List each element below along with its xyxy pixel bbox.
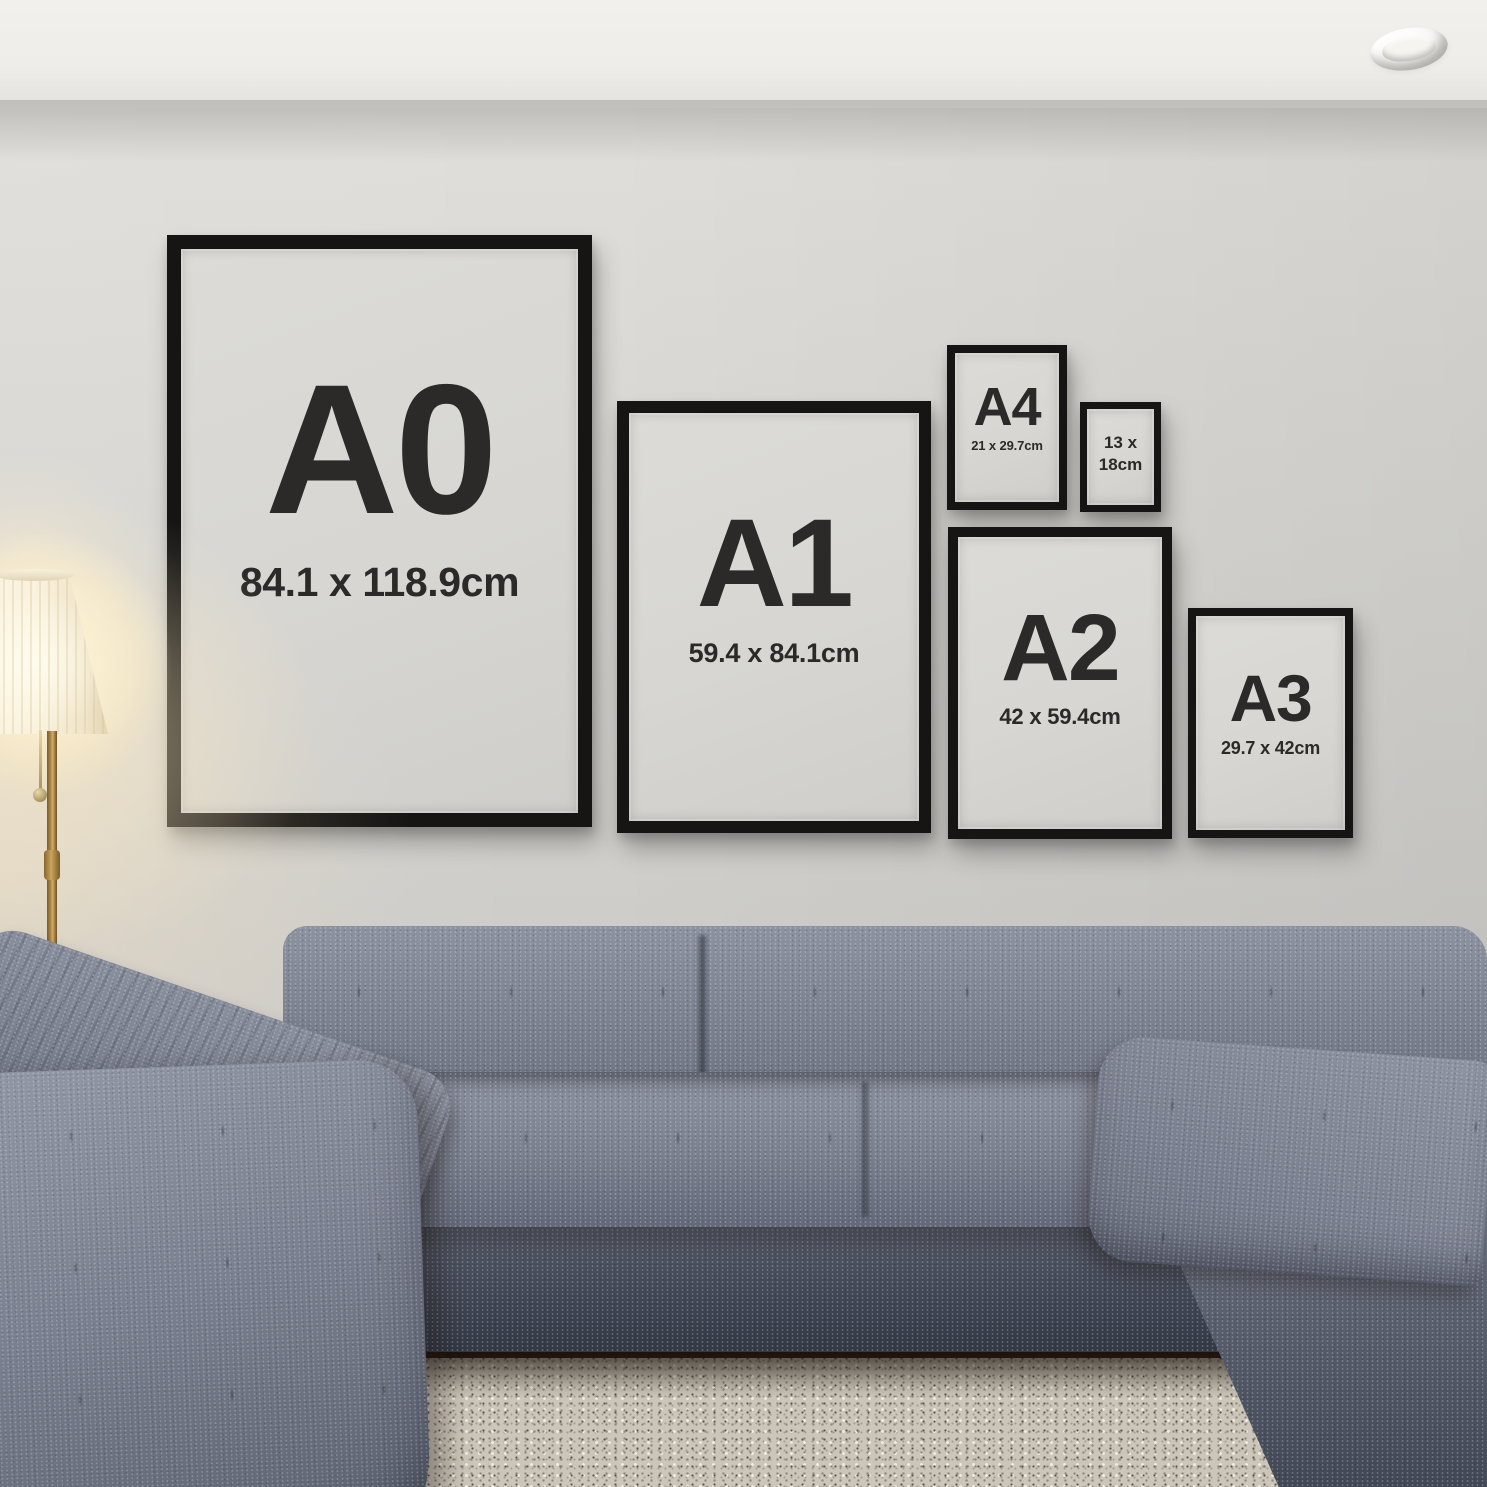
frame-13x18: 13 x 18cm bbox=[1080, 402, 1161, 512]
frame-a4-size: 21 x 29.7cm bbox=[971, 438, 1043, 453]
frame-a0-content: A0 84.1 x 118.9cm bbox=[181, 203, 578, 767]
frame-13x18-size-line2: 18cm bbox=[1099, 454, 1142, 476]
frame-a3-size: 29.7 x 42cm bbox=[1221, 738, 1320, 759]
frame-a4: A4 21 x 29.7cm bbox=[947, 345, 1067, 510]
frame-13x18-size-line1: 13 x bbox=[1104, 432, 1137, 454]
frame-a3-content: A3 29.7 x 42cm bbox=[1196, 606, 1345, 820]
frame-a0: A0 84.1 x 118.9cm bbox=[167, 235, 592, 827]
frame-a0-size: 84.1 x 118.9cm bbox=[240, 559, 519, 606]
frame-a1-size: 59.4 x 84.1cm bbox=[689, 638, 860, 669]
sofa-seat-seam bbox=[862, 1082, 868, 1217]
lamp-pole-joint bbox=[44, 850, 60, 880]
frame-a2-content: A2 42 x 59.4cm bbox=[958, 521, 1162, 813]
frame-a1: A1 59.4 x 84.1cm bbox=[617, 401, 931, 833]
frame-a2-size: 42 x 59.4cm bbox=[999, 704, 1120, 730]
frame-a1-label: A1 bbox=[697, 505, 852, 623]
frame-a3-label: A3 bbox=[1230, 667, 1312, 729]
frame-a2: A2 42 x 59.4cm bbox=[948, 527, 1172, 839]
living-room-scene: A0 84.1 x 118.9cm A1 59.4 x 84.1cm A4 21… bbox=[0, 0, 1487, 1487]
frame-a1-content: A1 59.4 x 84.1cm bbox=[629, 383, 919, 791]
frame-13x18-content: 13 x 18cm bbox=[1087, 406, 1154, 502]
frame-a4-content: A4 21 x 29.7cm bbox=[955, 343, 1059, 492]
frame-a4-label: A4 bbox=[974, 382, 1041, 433]
frame-a0-label: A0 bbox=[265, 364, 494, 538]
frame-a2-label: A2 bbox=[1001, 604, 1119, 693]
lamp-pull-chain bbox=[39, 730, 42, 792]
ceiling bbox=[0, 0, 1487, 108]
sofa-right-chaise-cushion bbox=[1086, 1034, 1487, 1286]
ceiling-wall-shadow bbox=[0, 100, 1487, 162]
sofa-left-chaise bbox=[0, 1058, 434, 1487]
frame-a3: A3 29.7 x 42cm bbox=[1188, 608, 1353, 838]
lamp-pull-ball bbox=[33, 788, 47, 802]
